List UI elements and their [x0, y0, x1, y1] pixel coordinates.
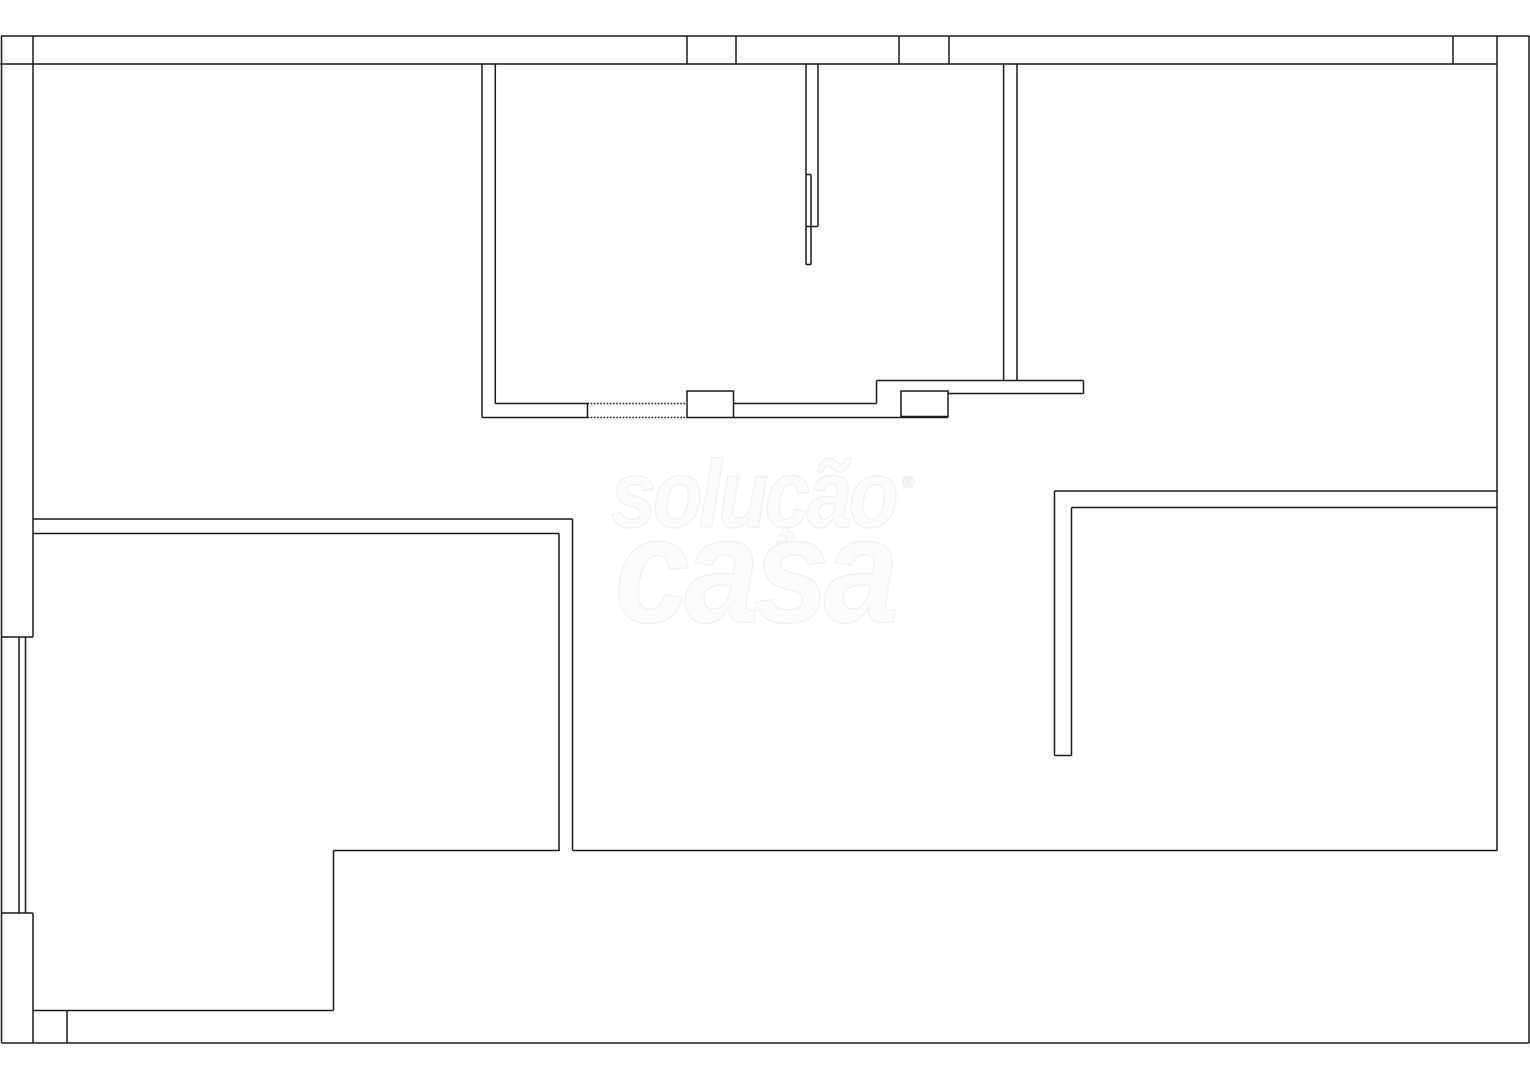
svg-text:®: ® — [902, 473, 915, 492]
svg-text:casa: casa — [615, 487, 896, 654]
